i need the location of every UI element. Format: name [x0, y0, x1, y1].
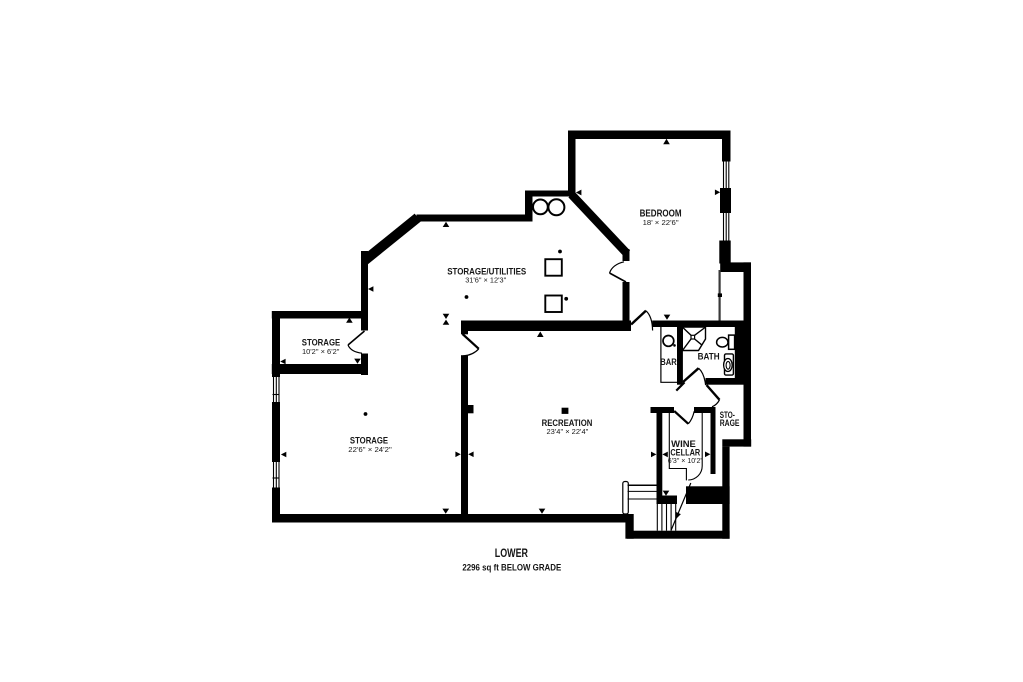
svg-text:10'2" × 6'2": 10'2" × 6'2": [302, 347, 340, 356]
svg-text:18' × 22'6": 18' × 22'6": [643, 218, 679, 227]
svg-text:STORAGE: STORAGE: [350, 435, 388, 445]
svg-text:22'6" × 24'2": 22'6" × 24'2": [348, 445, 392, 454]
svg-text:BATH: BATH: [698, 352, 720, 363]
svg-text:6'3" × 10'2": 6'3" × 10'2": [668, 456, 704, 465]
svg-text:23'4" × 22'4": 23'4" × 22'4": [547, 427, 589, 436]
svg-text:31'6" × 12'3": 31'6" × 12'3": [465, 276, 506, 285]
svg-text:BAR: BAR: [660, 357, 677, 368]
svg-text:2296 sq ft BELOW GRADE: 2296 sq ft BELOW GRADE: [462, 562, 561, 572]
svg-text:RAGE: RAGE: [720, 418, 740, 428]
svg-text:LOWER: LOWER: [495, 546, 528, 560]
